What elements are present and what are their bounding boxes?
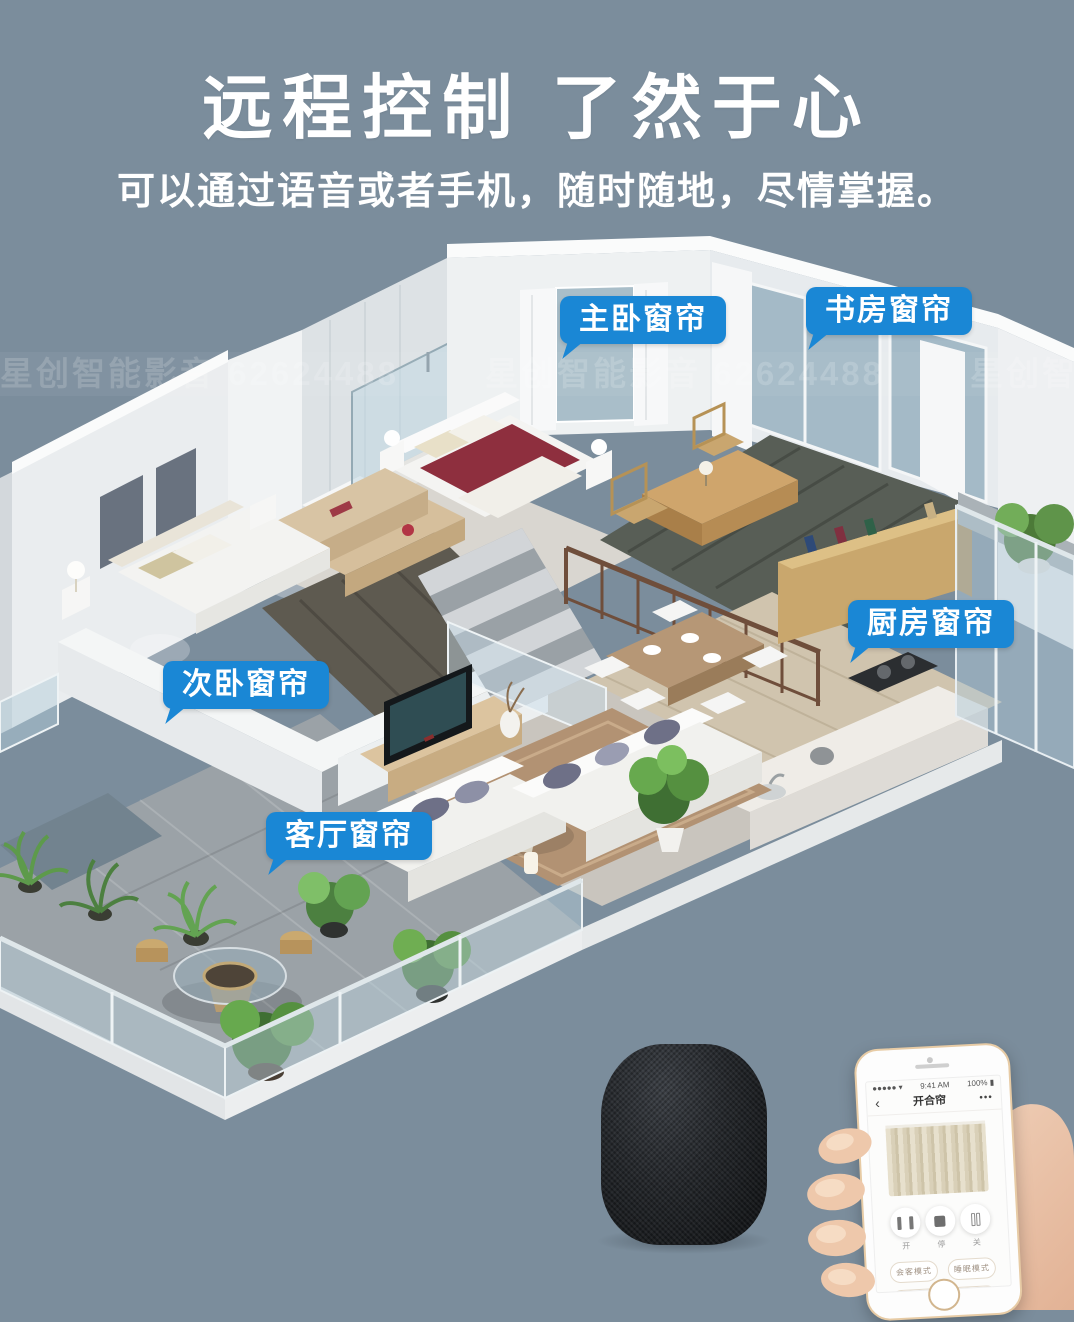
- watermark-text: 星创智能影音 62624488: [970, 355, 1074, 392]
- watermark-band: 星创智能影音 62624488星创智能影音 62624488星创智能影音 626…: [0, 352, 1074, 396]
- curtain-controls: 开 停 关: [872, 1198, 1008, 1253]
- home-button[interactable]: [927, 1278, 961, 1312]
- battery-percent: 100%: [967, 1078, 988, 1088]
- label-second-bedroom-curtain: 次卧窗帘: [163, 661, 329, 709]
- curtain-close-icon: [969, 1212, 982, 1226]
- curtain-preview-image: [885, 1120, 989, 1196]
- control-label: 关: [973, 1237, 982, 1248]
- mode-button-guest[interactable]: 会客模式: [889, 1260, 938, 1283]
- more-options-icon[interactable]: •••: [979, 1091, 993, 1103]
- curtain-stop-button[interactable]: [925, 1205, 957, 1237]
- page-title: 远程控制 了然于心: [0, 52, 1074, 153]
- label-master-bedroom-curtain: 主卧窗帘: [560, 296, 726, 344]
- curtain-close-button[interactable]: [960, 1203, 992, 1235]
- smartphone: ●●●●● ▾ 9:41 AM 100% ▮ ‹ 开合帘 ••• 开: [853, 1042, 1023, 1322]
- label-kitchen-curtain: 厨房窗帘: [848, 600, 1014, 648]
- back-chevron-icon[interactable]: ‹: [875, 1098, 880, 1108]
- stop-icon: [935, 1215, 947, 1227]
- control-label: 开: [902, 1240, 911, 1251]
- watermark-text: 星创智能影音 62624488: [0, 355, 399, 392]
- phone-screen: ●●●●● ▾ 9:41 AM 100% ▮ ‹ 开合帘 ••• 开: [865, 1074, 1012, 1293]
- battery-status: 100% ▮: [967, 1078, 995, 1088]
- label-study-curtain: 书房窗帘: [806, 287, 972, 335]
- front-camera-icon: [927, 1057, 933, 1063]
- mode-button-sleep[interactable]: 睡眠模式: [947, 1257, 996, 1280]
- signal-wifi-icon: ●●●●● ▾: [872, 1083, 903, 1094]
- page-subtitle: 可以通过语音或者手机，随时随地，尽情掌握。: [0, 160, 1074, 215]
- app-title: 开合帘: [913, 1091, 947, 1109]
- curtain-open-button[interactable]: [889, 1207, 921, 1239]
- watermark-text: 星创智能影音 62624488: [485, 355, 884, 392]
- status-time: 9:41 AM: [920, 1080, 950, 1091]
- smart-speaker-icon: [601, 1044, 767, 1245]
- control-label: 停: [937, 1239, 946, 1250]
- curtain-open-control[interactable]: 开: [889, 1207, 921, 1253]
- curtain-close-control[interactable]: 关: [960, 1203, 992, 1249]
- earpiece-icon: [915, 1063, 949, 1069]
- label-living-room-curtain: 客厅窗帘: [266, 812, 432, 860]
- curtain-open-icon: [897, 1216, 914, 1230]
- curtain-stop-control[interactable]: 停: [925, 1205, 957, 1251]
